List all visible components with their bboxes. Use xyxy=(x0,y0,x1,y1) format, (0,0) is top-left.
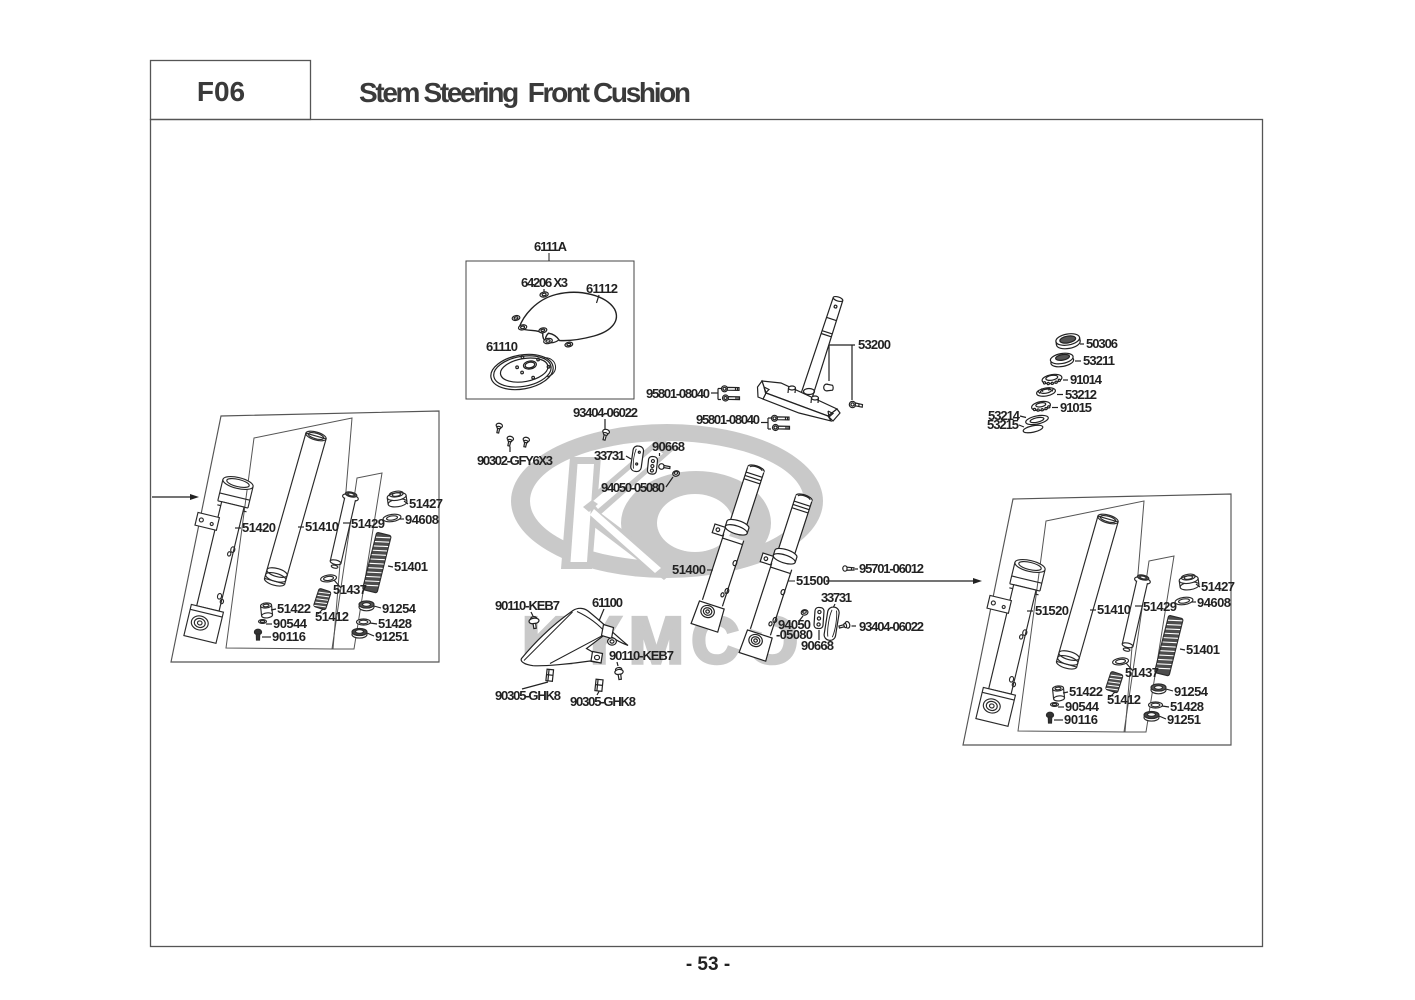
svg-text:95701-06012: 95701-06012 xyxy=(859,561,924,576)
svg-text:50306: 50306 xyxy=(1086,336,1118,351)
svg-text:53200: 53200 xyxy=(858,337,891,352)
svg-text:6111A: 6111A xyxy=(534,239,568,254)
svg-text:51410: 51410 xyxy=(305,519,339,534)
svg-text:90305-GHK8: 90305-GHK8 xyxy=(570,694,636,709)
svg-text:95801-08040: 95801-08040 xyxy=(696,412,760,427)
svg-text:51401: 51401 xyxy=(394,559,428,574)
svg-text:90110-KEB7: 90110-KEB7 xyxy=(495,598,560,613)
svg-text:51422: 51422 xyxy=(277,601,311,616)
svg-text:90305-GHK8: 90305-GHK8 xyxy=(495,688,561,703)
svg-text:33731: 33731 xyxy=(594,448,625,463)
svg-text:91251: 91251 xyxy=(375,629,409,644)
svg-text:90110-KEB7: 90110-KEB7 xyxy=(609,648,674,663)
svg-text:53215: 53215 xyxy=(987,417,1019,432)
svg-text:51500: 51500 xyxy=(796,573,830,588)
svg-text:51427: 51427 xyxy=(409,496,443,511)
svg-text:94050-05080: 94050-05080 xyxy=(601,480,665,495)
svg-text:93404-06022: 93404-06022 xyxy=(573,405,638,420)
svg-text:91254: 91254 xyxy=(382,601,417,616)
svg-text:51520: 51520 xyxy=(1035,603,1069,618)
svg-text:51420: 51420 xyxy=(242,520,276,535)
svg-text:64206 X3: 64206 X3 xyxy=(521,275,568,290)
svg-text:90116: 90116 xyxy=(272,629,306,644)
svg-text:51429: 51429 xyxy=(351,516,385,531)
svg-text:93404-06022: 93404-06022 xyxy=(859,619,924,634)
svg-text:51412: 51412 xyxy=(315,609,349,624)
svg-text:91014: 91014 xyxy=(1070,372,1103,387)
svg-text:Stem Steering Front Cushion: Stem Steering Front Cushion xyxy=(359,77,691,108)
svg-text:- 53 -: - 53 - xyxy=(686,954,730,975)
svg-text:90668: 90668 xyxy=(652,439,685,454)
svg-text:53211: 53211 xyxy=(1083,353,1115,368)
svg-text:51400: 51400 xyxy=(672,562,706,577)
svg-text:61100: 61100 xyxy=(592,595,623,610)
svg-text:51437: 51437 xyxy=(333,582,367,597)
svg-text:F06: F06 xyxy=(197,76,245,107)
svg-text:90302-GFY6X3: 90302-GFY6X3 xyxy=(477,453,553,468)
svg-text:91015: 91015 xyxy=(1060,400,1092,415)
svg-text:94608: 94608 xyxy=(405,512,439,527)
svg-text:61110: 61110 xyxy=(486,339,518,354)
svg-text:95801-08040: 95801-08040 xyxy=(646,386,710,401)
svg-text:33731: 33731 xyxy=(821,590,852,605)
